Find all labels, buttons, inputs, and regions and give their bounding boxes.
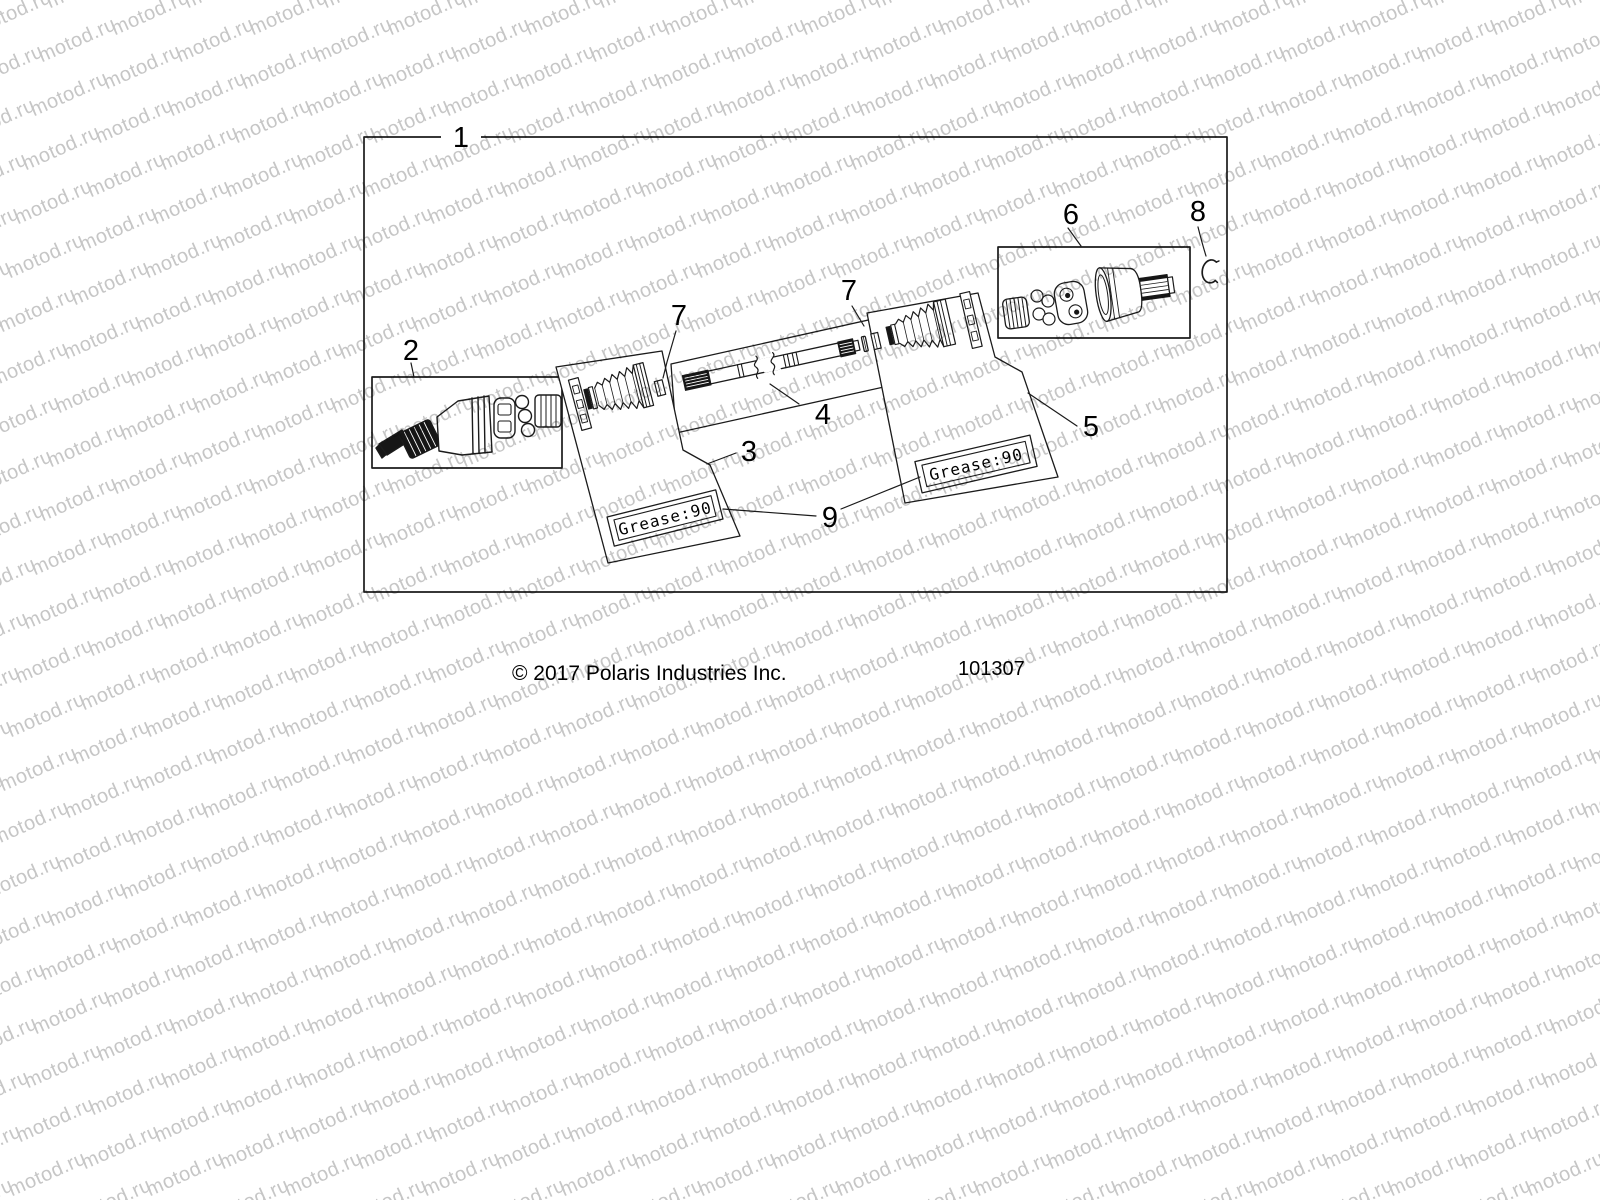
- inner-cv-joint-parts: [1002, 258, 1177, 329]
- outer-cv-joint-parts: [376, 395, 561, 459]
- callout-1: 1: [453, 122, 469, 154]
- callout-3: 3: [741, 436, 757, 468]
- callout-7-right: 7: [841, 275, 857, 307]
- drawing-number: 101307: [958, 658, 1025, 680]
- parts-diagram-page: Grease:90: [0, 0, 1600, 1200]
- leader-3: [707, 453, 736, 464]
- exploded-parts-diagram: Grease:90: [0, 0, 1600, 1200]
- outer-cv-joint-box: [372, 377, 562, 468]
- callout-6: 6: [1063, 199, 1079, 231]
- leader-8: [1198, 227, 1206, 256]
- leader-9-left: [723, 509, 816, 516]
- inner-cv-joint-box: [998, 247, 1190, 338]
- callout-5: 5: [1083, 411, 1099, 443]
- callout-4: 4: [815, 399, 831, 431]
- callout-8: 8: [1190, 196, 1206, 228]
- callout-2: 2: [403, 335, 419, 367]
- copyright-text: © 2017 Polaris Industries Inc.: [512, 662, 787, 685]
- callout-labels: 1 2 3 4 5 6 7 7 8 9: [403, 122, 1206, 534]
- footer: © 2017 Polaris Industries Inc. 101307: [512, 658, 1025, 685]
- callout-7-left: 7: [671, 300, 687, 332]
- retaining-ring-clip: [1201, 259, 1221, 284]
- callout-9: 9: [822, 502, 838, 534]
